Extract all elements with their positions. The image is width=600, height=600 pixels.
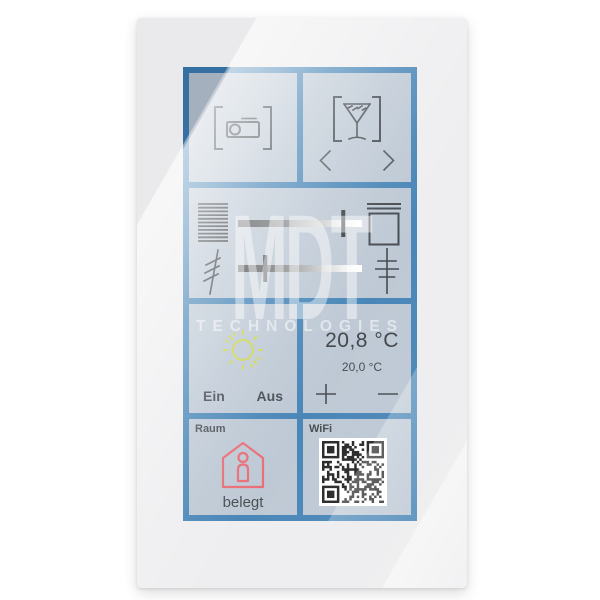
wifi-title: WiFi (309, 423, 332, 435)
tile-light: Ein Aus (189, 304, 297, 413)
tile-presence[interactable]: Raum belegt (189, 419, 297, 515)
light-off-button[interactable]: Aus (257, 388, 283, 404)
dimmer-slider-handle[interactable] (264, 255, 268, 282)
glass-panel: Ein Aus 20,8 °C 20,0 °C (137, 18, 467, 588)
blinds-icon[interactable] (198, 203, 228, 242)
tile-blinds-dimmer (189, 188, 411, 298)
light-on-button[interactable]: Ein (203, 388, 225, 404)
plus-icon (315, 383, 337, 405)
cocktail-icon (329, 92, 385, 150)
tile-wifi[interactable]: WiFi (303, 419, 411, 515)
minus-icon (377, 383, 399, 405)
temp-decrease-button[interactable] (377, 383, 399, 405)
chevron-left-icon[interactable] (319, 149, 332, 172)
tile-grid: Ein Aus 20,8 °C 20,0 °C (183, 67, 417, 521)
temp-increase-button[interactable] (315, 383, 337, 405)
setpoint-temperature: 20,0 °C (342, 360, 382, 374)
sun-icon (220, 327, 266, 373)
projector-icon (210, 103, 276, 153)
dim-levels-icon[interactable] (375, 248, 399, 294)
tile-climate: 20,8 °C 20,0 °C (303, 304, 411, 413)
tile-scene-projector[interactable] (189, 73, 297, 182)
window-icon[interactable] (367, 202, 401, 247)
qr-code (319, 438, 387, 506)
current-temperature: 20,8 °C (325, 329, 399, 353)
tile-scene-cocktail[interactable] (303, 73, 411, 182)
dimmer-icon[interactable] (203, 249, 225, 295)
house-person-icon (221, 441, 265, 489)
page-background: Ein Aus 20,8 °C 20,0 °C (0, 0, 600, 600)
chevron-right-icon[interactable] (382, 149, 395, 172)
blinds-slider[interactable] (238, 220, 362, 227)
blinds-slider-handle[interactable] (342, 210, 346, 237)
presence-status: belegt (223, 494, 264, 511)
dimmer-slider[interactable] (238, 265, 362, 272)
